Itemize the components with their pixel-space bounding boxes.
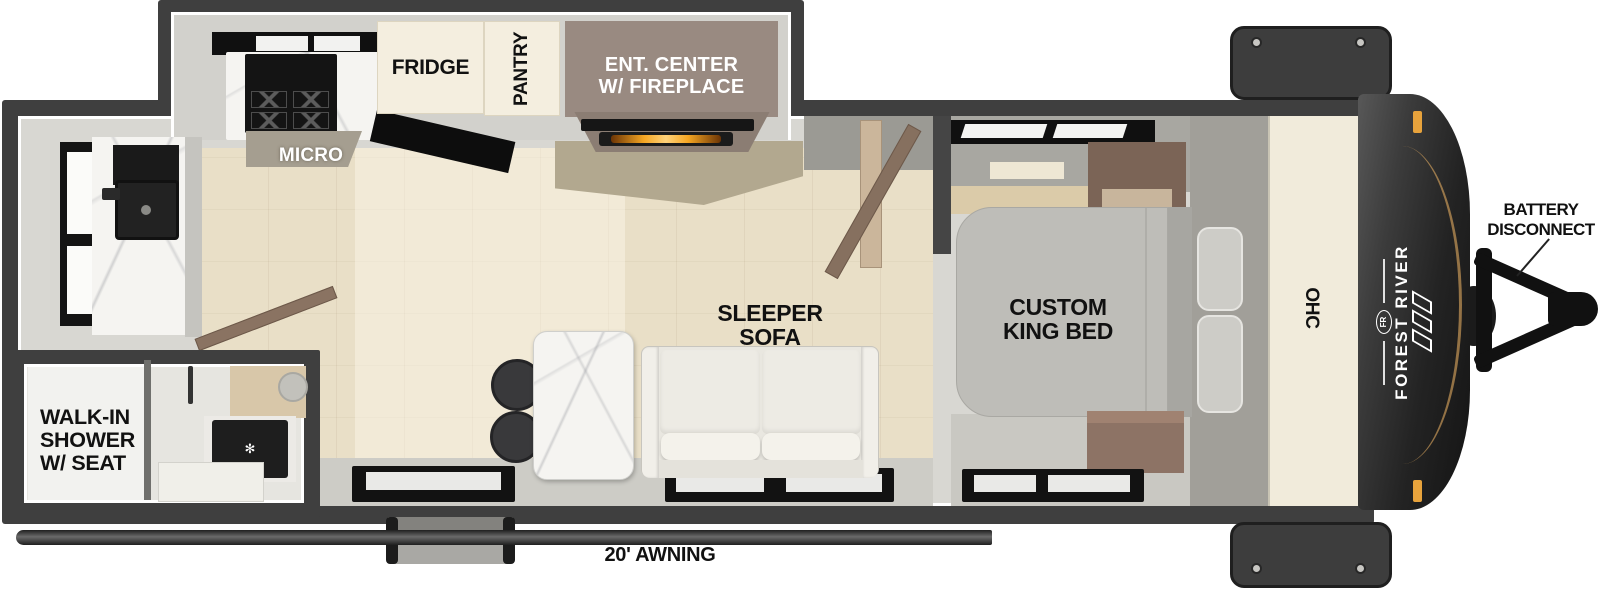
battery-disconnect-label: BATTERY DISCONNECT (1482, 200, 1600, 239)
brand-logo: FR FOREST RIVER (1371, 182, 1435, 462)
bathroom-faucet (102, 188, 120, 200)
entertainment-center: ENT. CENTER W/ FIREPLACE (565, 21, 778, 117)
micro-label: MICRO (252, 146, 370, 167)
hitch-coupler (1548, 292, 1598, 326)
bed-label-line2: KING BED (990, 320, 1126, 344)
fr-emblem-icon: FR (1376, 310, 1392, 334)
bathroom-wall (185, 137, 202, 337)
battery-label-line2: DISCONNECT (1482, 220, 1600, 240)
pillow (1197, 227, 1243, 311)
bathroom-sink (115, 180, 179, 240)
fridge: FRIDGE (377, 21, 484, 114)
bedroom-wall-window (990, 162, 1064, 179)
rivet-icon (1253, 39, 1260, 46)
bed-label-line1: CUSTOM (990, 296, 1126, 320)
pillow (1197, 315, 1243, 413)
ohc-label-wrap: OHC (1301, 278, 1321, 338)
rivet-icon (1357, 39, 1364, 46)
range-window-pane (314, 36, 360, 51)
range-window-pane (256, 36, 308, 51)
shower-label-line2: SHOWER (40, 429, 160, 452)
burner-icon (293, 112, 329, 129)
brand-name: FOREST RIVER (1393, 244, 1413, 400)
sleeper-sofa (641, 346, 879, 477)
battery-label-line1: BATTERY (1482, 200, 1600, 220)
bed-platform-band (1190, 116, 1268, 506)
dinette-table (533, 331, 634, 480)
shower-label: WALK-IN SHOWER W/ SEAT (40, 406, 160, 474)
fireplace-flame (611, 135, 721, 143)
floorplan-canvas: FRIDGE PANTRY ENT. CENTER W/ FIREPLACE M… (0, 0, 1600, 590)
front-storage-box-bottom (1230, 522, 1392, 588)
pantry: PANTRY (484, 21, 560, 116)
bedroom-skylight (950, 120, 1155, 144)
bathroom-upper-cabinet (113, 145, 179, 185)
sofa-label: SLEEPER SOFA (700, 302, 840, 350)
battery-pointer-line (1516, 238, 1550, 276)
fridge-label: FRIDGE (392, 57, 470, 79)
brand-emblem-row: FR (1375, 259, 1393, 385)
ohc-label: OHC (1301, 287, 1322, 328)
ent-center-label-line2: W/ FIREPLACE (599, 77, 745, 99)
shower-door-handle (188, 366, 193, 404)
burner-icon (293, 91, 329, 108)
awning-label: 20' AWNING (575, 545, 745, 566)
bed-head-band (1168, 207, 1192, 417)
bedroom-divider-wall (933, 116, 951, 254)
bed-label: CUSTOM KING BED (990, 296, 1126, 344)
nightstand (1087, 411, 1184, 473)
burner-icon (251, 112, 287, 129)
sofa-label-line1: SLEEPER (700, 302, 840, 326)
shower-label-line1: WALK-IN (40, 406, 160, 429)
burner-icon (251, 91, 287, 108)
wardrobe (1088, 142, 1186, 212)
cap-accent-bottom (1413, 480, 1422, 502)
fr-emblem-text: FR (1380, 317, 1388, 328)
rivet-icon (1357, 565, 1364, 572)
front-storage-box-top (1230, 26, 1392, 100)
shower-label-line3: W/ SEAT (40, 452, 160, 475)
shower-round-basin (278, 372, 308, 402)
pantry-label: PANTRY (512, 31, 532, 105)
cap-accent-top (1413, 111, 1422, 133)
tv (581, 119, 754, 131)
drain-icon: ✻ (245, 441, 256, 457)
sofa-label-line2: SOFA (700, 326, 840, 350)
ent-center-label-line1: ENT. CENTER (605, 55, 738, 77)
brand-stripes-icon (1413, 297, 1431, 348)
window-bedroom (962, 469, 1144, 502)
shower-seat (158, 462, 264, 502)
rivet-icon (1253, 565, 1260, 572)
cooktop (245, 54, 337, 133)
window-dinette (352, 466, 515, 502)
awning-rail (16, 530, 992, 545)
